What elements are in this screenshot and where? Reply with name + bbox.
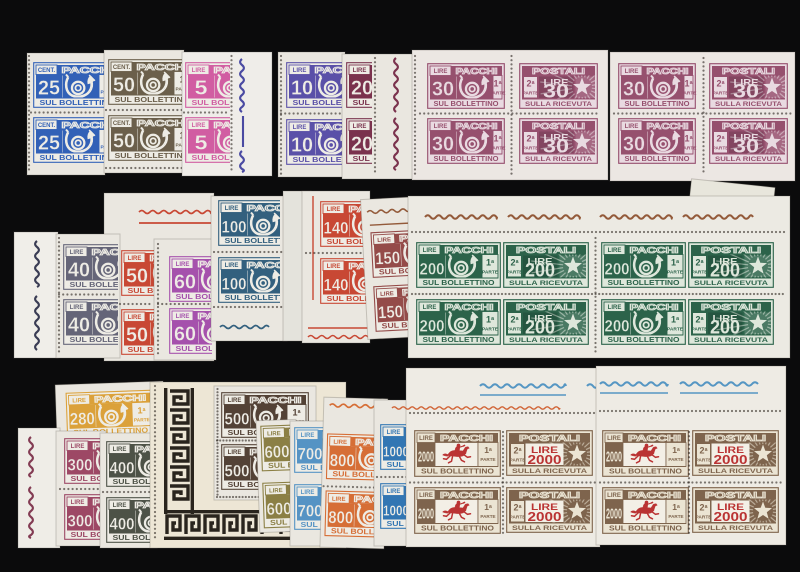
- svg-text:200: 200: [420, 260, 445, 279]
- svg-text:200: 200: [420, 317, 445, 336]
- svg-text:SUL BOLLETTINO: SUL BOLLETTINO: [423, 278, 495, 287]
- svg-text:LIRE: LIRE: [625, 124, 639, 130]
- svg-text:150: 150: [377, 302, 403, 322]
- svg-text:SUL BOLLETTINO: SUL BOLLETTINO: [608, 278, 680, 287]
- svg-text:LIRE: LIRE: [423, 305, 437, 311]
- svg-text:2000: 2000: [606, 506, 622, 523]
- svg-text:100: 100: [222, 275, 247, 294]
- svg-text:2000: 2000: [418, 506, 434, 523]
- svg-text:POSTALI: POSTALI: [701, 302, 761, 312]
- svg-text:PARTE: PARTE: [668, 514, 683, 519]
- svg-text:140: 140: [324, 276, 349, 295]
- svg-text:PARTE: PARTE: [681, 146, 698, 152]
- svg-text:300: 300: [68, 512, 93, 531]
- svg-text:700: 700: [298, 502, 323, 521]
- svg-text:PACCHI: PACCHI: [440, 490, 493, 500]
- svg-text:LIRE: LIRE: [228, 450, 242, 456]
- svg-text:SUL BOLLETTINO: SUL BOLLETTINO: [40, 98, 115, 107]
- svg-text:PARTE: PARTE: [490, 146, 507, 152]
- svg-text:PARTE: PARTE: [681, 91, 698, 97]
- svg-text:SULLA RICEVUTA: SULLA RICEVUTA: [694, 337, 768, 344]
- svg-text:100: 100: [222, 218, 247, 237]
- svg-text:400: 400: [110, 515, 135, 534]
- svg-text:SUL BOLLETTINO: SUL BOLLETTINO: [434, 99, 499, 108]
- svg-text:SUL BOLLETTINO: SUL BOLLETTINO: [421, 525, 495, 532]
- svg-text:SULLA RICEVUTA: SULLA RICEVUTA: [509, 337, 583, 344]
- svg-text:SULLA RICEVUTA: SULLA RICEVUTA: [509, 280, 583, 287]
- svg-text:LIRE: LIRE: [269, 488, 283, 494]
- svg-text:PACCHI: PACCHI: [456, 121, 498, 131]
- svg-text:600: 600: [266, 499, 292, 519]
- svg-text:PARTE: PARTE: [510, 515, 527, 521]
- svg-text:300: 300: [68, 456, 93, 475]
- svg-text:LIRE: LIRE: [293, 68, 307, 74]
- svg-text:PARTE: PARTE: [482, 327, 499, 333]
- svg-text:40: 40: [68, 260, 90, 282]
- svg-text:LIRE: LIRE: [176, 314, 190, 320]
- svg-text:LIRE: LIRE: [72, 398, 86, 404]
- svg-text:SUL BOLLETTINO: SUL BOLLETTINO: [115, 95, 190, 104]
- svg-text:POSTALI: POSTALI: [516, 302, 576, 312]
- svg-text:LIRE: LIRE: [113, 447, 127, 453]
- svg-text:SULLA RICEVUTA: SULLA RICEVUTA: [715, 156, 782, 163]
- svg-text:SULLA RICEVUTA: SULLA RICEVUTA: [698, 525, 773, 532]
- svg-text:SUL BOLLETTINO: SUL BOLLETTINO: [625, 99, 690, 108]
- svg-text:LIRE: LIRE: [113, 503, 127, 509]
- svg-text:LIRE: LIRE: [71, 444, 85, 450]
- svg-text:LIRE: LIRE: [419, 493, 433, 499]
- svg-text:PACCHI: PACCHI: [630, 302, 679, 312]
- svg-text:5: 5: [195, 78, 208, 100]
- svg-text:30: 30: [623, 134, 645, 156]
- svg-text:LIRE: LIRE: [607, 493, 621, 499]
- svg-text:SUL BOLLETTINO: SUL BOLLETTINO: [608, 335, 680, 344]
- svg-text:PARTE: PARTE: [667, 327, 684, 333]
- svg-text:PACCHI: PACCHI: [445, 302, 494, 312]
- svg-text:POSTALI: POSTALI: [722, 66, 775, 76]
- svg-text:LIRE: LIRE: [353, 68, 367, 74]
- svg-text:PARTE: PARTE: [692, 327, 709, 333]
- svg-text:SUL BOLLETTINO: SUL BOLLETTINO: [40, 153, 115, 162]
- svg-text:LIRE: LIRE: [228, 398, 242, 404]
- svg-text:PARTE: PARTE: [523, 146, 540, 152]
- svg-text:SUL BOLLETTINO: SUL BOLLETTINO: [115, 151, 190, 160]
- svg-text:LIRE: LIRE: [387, 489, 401, 495]
- svg-text:POSTALI: POSTALI: [516, 245, 576, 255]
- svg-text:10: 10: [291, 78, 313, 100]
- svg-text:50: 50: [113, 75, 135, 97]
- svg-text:SULLA RICEVUTA: SULLA RICEVUTA: [512, 525, 587, 532]
- svg-text:LIRE: LIRE: [608, 305, 622, 311]
- svg-text:200: 200: [605, 317, 630, 336]
- svg-text:150: 150: [375, 248, 401, 268]
- svg-text:LIRE: LIRE: [70, 250, 84, 256]
- svg-text:30: 30: [432, 134, 454, 156]
- svg-text:POSTALI: POSTALI: [701, 245, 761, 255]
- svg-text:PACCHI: PACCHI: [647, 66, 689, 76]
- svg-text:PACCHI: PACCHI: [137, 118, 189, 128]
- svg-text:POSTALI: POSTALI: [722, 121, 775, 131]
- svg-text:LIRE: LIRE: [128, 256, 142, 262]
- svg-text:2000: 2000: [606, 449, 622, 466]
- svg-text:PACCHI: PACCHI: [630, 245, 679, 255]
- svg-text:PACCHI: PACCHI: [445, 245, 494, 255]
- svg-text:50: 50: [126, 266, 148, 288]
- svg-text:PACCHI: PACCHI: [440, 433, 493, 443]
- svg-text:50: 50: [126, 325, 148, 347]
- svg-text:PACCHI: PACCHI: [628, 433, 681, 443]
- svg-text:POSTALI: POSTALI: [532, 121, 585, 131]
- svg-text:2000: 2000: [714, 452, 748, 467]
- svg-text:SUL BOLLETTINO: SUL BOLLETTINO: [625, 154, 690, 163]
- svg-text:PARTE: PARTE: [507, 327, 524, 333]
- svg-text:140: 140: [324, 219, 349, 238]
- svg-text:POSTALI: POSTALI: [705, 490, 766, 500]
- svg-text:PARTE: PARTE: [510, 458, 527, 464]
- svg-text:PARTE: PARTE: [480, 514, 495, 519]
- svg-text:LIRE: LIRE: [128, 315, 142, 321]
- svg-text:LIRE: LIRE: [225, 263, 239, 269]
- svg-text:PARTE: PARTE: [482, 270, 499, 276]
- svg-text:PARTE: PARTE: [713, 91, 730, 97]
- svg-text:10: 10: [291, 135, 313, 157]
- svg-text:800: 800: [328, 508, 353, 528]
- svg-text:POSTALI: POSTALI: [519, 433, 580, 443]
- svg-text:400: 400: [110, 459, 135, 478]
- svg-text:LIRE: LIRE: [225, 206, 239, 212]
- svg-text:280: 280: [69, 409, 95, 429]
- svg-text:PARTE: PARTE: [480, 457, 495, 462]
- svg-text:40: 40: [68, 315, 90, 337]
- svg-text:PARTE: PARTE: [134, 417, 151, 424]
- svg-text:PACCHI: PACCHI: [137, 62, 189, 72]
- svg-text:SUL BOLLETTINO: SUL BOLLETTINO: [609, 468, 683, 475]
- svg-text:700: 700: [298, 445, 323, 464]
- svg-text:LIRE: LIRE: [327, 264, 341, 270]
- svg-text:1000: 1000: [383, 503, 409, 520]
- svg-text:LIRE: LIRE: [434, 69, 448, 75]
- svg-text:SUL BOLLETTINO: SUL BOLLETTINO: [434, 154, 499, 163]
- svg-text:LIRE: LIRE: [327, 207, 341, 213]
- svg-text:LIRE: LIRE: [377, 237, 391, 244]
- svg-text:50: 50: [113, 131, 135, 153]
- svg-text:SULLA RICEVUTA: SULLA RICEVUTA: [694, 280, 768, 287]
- svg-text:60: 60: [174, 272, 196, 294]
- svg-text:SULLA RICEVUTA: SULLA RICEVUTA: [525, 156, 592, 163]
- svg-text:POSTALI: POSTALI: [519, 490, 580, 500]
- svg-text:PARTE: PARTE: [667, 270, 684, 276]
- svg-text:PARTE: PARTE: [668, 457, 683, 462]
- svg-text:SUL BOLLETTINO: SUL BOLLETTINO: [423, 335, 495, 344]
- svg-text:CENT.: CENT.: [38, 68, 56, 74]
- svg-text:2000: 2000: [528, 509, 562, 524]
- svg-text:SULLA RICEVUTA: SULLA RICEVUTA: [715, 101, 782, 108]
- svg-text:PACCHI: PACCHI: [647, 121, 689, 131]
- svg-text:PARTE: PARTE: [490, 91, 507, 97]
- svg-text:25: 25: [38, 78, 60, 100]
- svg-text:800: 800: [329, 451, 354, 471]
- svg-text:LIRE: LIRE: [608, 248, 622, 254]
- svg-text:60: 60: [174, 324, 196, 346]
- svg-text:LIRE: LIRE: [625, 69, 639, 75]
- svg-text:LIRE: LIRE: [607, 436, 621, 442]
- svg-text:SULLA RICEVUTA: SULLA RICEVUTA: [512, 468, 587, 475]
- svg-text:200: 200: [605, 260, 630, 279]
- svg-text:SULLA RICEVUTA: SULLA RICEVUTA: [698, 468, 773, 475]
- svg-text:POSTALI: POSTALI: [705, 433, 766, 443]
- svg-text:LIRE: LIRE: [380, 291, 394, 298]
- svg-text:500: 500: [225, 462, 250, 481]
- svg-text:LIRE: LIRE: [192, 68, 206, 74]
- svg-text:LIRE: LIRE: [70, 305, 84, 311]
- svg-text:LIRE: LIRE: [333, 440, 347, 446]
- svg-text:SUL BOLLETTINO: SUL BOLLETTINO: [421, 468, 495, 475]
- svg-text:LIRE: LIRE: [301, 490, 315, 496]
- svg-text:LIRE: LIRE: [434, 124, 448, 130]
- svg-text:30: 30: [432, 79, 454, 101]
- svg-text:600: 600: [264, 442, 290, 462]
- svg-text:CENT.: CENT.: [113, 65, 131, 71]
- svg-text:LIRE: LIRE: [267, 431, 281, 437]
- svg-text:PACCHI: PACCHI: [456, 66, 498, 76]
- svg-text:CENT.: CENT.: [113, 121, 131, 127]
- svg-text:5: 5: [195, 133, 208, 155]
- svg-text:LIRE: LIRE: [293, 125, 307, 131]
- svg-text:LIRE: LIRE: [192, 123, 206, 129]
- svg-text:PACCHI: PACCHI: [628, 490, 681, 500]
- svg-text:SULLA RICEVUTA: SULLA RICEVUTA: [525, 101, 592, 108]
- svg-text:20: 20: [351, 134, 373, 156]
- svg-text:2000: 2000: [418, 449, 434, 466]
- svg-text:CENT.: CENT.: [38, 123, 56, 129]
- svg-text:SUL BOLLETTINO: SUL BOLLETTINO: [609, 525, 683, 532]
- svg-text:LIRE: LIRE: [301, 433, 315, 439]
- svg-text:PARTE: PARTE: [696, 515, 713, 521]
- svg-text:500: 500: [225, 410, 250, 429]
- svg-text:PARTE: PARTE: [692, 270, 709, 276]
- svg-text:POSTALI: POSTALI: [532, 66, 585, 76]
- svg-text:LIRE: LIRE: [353, 124, 367, 130]
- svg-text:PARTE: PARTE: [696, 458, 713, 464]
- svg-text:PARTE: PARTE: [713, 146, 730, 152]
- svg-text:LIRE: LIRE: [387, 430, 401, 436]
- svg-text:LIRE: LIRE: [419, 436, 433, 442]
- svg-text:PARTE: PARTE: [507, 270, 524, 276]
- svg-text:1000: 1000: [383, 444, 409, 461]
- svg-text:2000: 2000: [714, 509, 748, 524]
- svg-text:20: 20: [351, 78, 373, 100]
- svg-text:LIRE: LIRE: [423, 248, 437, 254]
- svg-text:PACCHI: PACCHI: [250, 395, 302, 405]
- svg-text:30: 30: [623, 79, 645, 101]
- svg-text:LIRE: LIRE: [176, 262, 190, 268]
- svg-text:2000: 2000: [528, 452, 562, 467]
- svg-text:25: 25: [38, 133, 60, 155]
- svg-text:LIRE: LIRE: [71, 500, 85, 506]
- svg-text:PARTE: PARTE: [523, 91, 540, 97]
- svg-text:LIRE: LIRE: [332, 497, 346, 503]
